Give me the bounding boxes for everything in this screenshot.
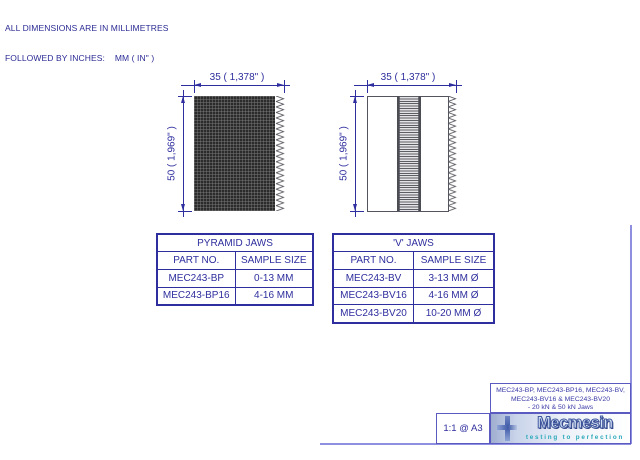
table-row: MEC243-BP 0-13 MM [157,270,313,288]
vee-height-dimension-label: 50 ( 1,969" ) [339,99,350,209]
description-line3: - 20 kN & 50 kN Jaws [491,404,630,413]
description-line1: MEC243-BP, MEC243-BP16, MEC243-BV, [491,387,630,396]
drawing-sheet: ALL DIMENSIONS ARE IN MILLIMETRES FOLLOW… [0,0,640,460]
sample-size-cell: 4-16 MM [235,287,313,305]
sample-size-cell: 3-13 MM Ø [414,270,495,288]
vee-jaws-table: 'V' JAWS PART NO. SAMPLE SIZE MEC243-BV … [332,233,495,324]
vee-width-dimension-label: 35 ( 1,378" ) [358,72,458,83]
arrowhead-icon [449,83,456,87]
extension-line [350,211,364,212]
part-no-cell: MEC243-BV [333,270,414,288]
pyramid-serration-zigzag-icon [275,96,285,211]
part-no-cell: MEC243-BV20 [333,305,414,323]
units-note-line1: ALL DIMENSIONS ARE IN MILLIMETRES [5,23,169,33]
extension-line [178,211,192,212]
sample-size-cell: 10-20 MM Ø [414,305,495,323]
pyramid-col-header-part: PART NO. [157,252,235,270]
scale-label: 1:1 @ A3 [443,423,482,434]
sample-size-cell: 4-16 MM Ø [414,287,495,305]
title-block-description: MEC243-BP, MEC243-BP16, MEC243-BV, MEC24… [490,383,631,413]
vee-col-header-size: SAMPLE SIZE [414,252,495,270]
dimension-line [355,90,356,217]
mecmesin-logo-text: Mecmesin [521,414,629,433]
pyramid-jaws-table: PYRAMID JAWS PART NO. SAMPLE SIZE MEC243… [156,233,314,306]
arrowhead-icon [194,83,201,87]
table-row: MEC243-BV20 10-20 MM Ø [333,305,494,323]
vee-jaw-groove [397,96,421,211]
vee-col-header-part: PART NO. [333,252,414,270]
dimension-line [183,90,184,217]
mecmesin-emblem-icon [497,416,517,441]
pyramid-table-title: PYRAMID JAWS [157,234,313,252]
arrowhead-icon [353,204,357,211]
table-row: MEC243-BV16 4-16 MM Ø [333,287,494,305]
arrowhead-icon [277,83,284,87]
arrowhead-icon [367,83,374,87]
table-row: MEC243-BV 3-13 MM Ø [333,270,494,288]
description-line2: MEC243-BV16 & MEC243-BV20 [491,396,630,405]
logo-box: Mecmesin testing to perfection [490,413,631,444]
pyramid-jaw-face [194,96,275,211]
arrowhead-icon [353,96,357,103]
table-row: MEC243-BP16 4-16 MM [157,287,313,305]
mecmesin-tagline: testing to perfection [521,434,629,441]
part-no-cell: MEC243-BP [157,270,235,288]
units-note: ALL DIMENSIONS ARE IN MILLIMETRES FOLLOW… [5,3,169,83]
part-no-cell: MEC243-BV16 [333,287,414,305]
sample-size-cell: 0-13 MM [235,270,313,288]
vee-table-title: 'V' JAWS [333,234,494,252]
arrowhead-icon [181,96,185,103]
vee-serration-zigzag-icon [447,96,457,211]
scale-box: 1:1 @ A3 [436,413,490,444]
pyramid-col-header-size: SAMPLE SIZE [235,252,313,270]
pyramid-width-dimension-label: 35 ( 1,378" ) [187,72,287,83]
emblem-horizontal-bar [497,425,517,430]
arrowhead-icon [181,204,185,211]
part-no-cell: MEC243-BP16 [157,287,235,305]
pyramid-height-dimension-label: 50 ( 1,969" ) [167,99,178,209]
units-note-line2: FOLLOWED BY INCHES: MM ( IN" ) [5,53,169,63]
